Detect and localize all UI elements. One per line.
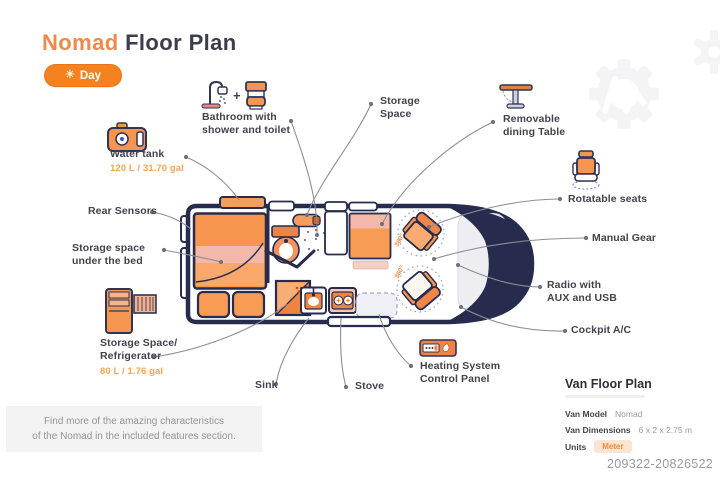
callout-water-tank: Water tank 120 L / 31.70 gal — [110, 148, 190, 176]
sink-unit — [301, 288, 326, 314]
callout-rear-sensors-label: Rear Sensors — [88, 205, 157, 217]
callout-heating: Heating System Control Panel — [420, 360, 508, 387]
callout-storage-under-bed: Storage space under the bed — [72, 242, 154, 269]
toilet-icon — [244, 80, 270, 112]
rotatable-seat-icon — [570, 149, 604, 191]
page-title: Nomad Floor Plan — [42, 30, 237, 56]
callout-cockpit-ac-label: Cockpit A/C — [571, 324, 631, 336]
callout-stove-label: Stove — [355, 380, 384, 392]
callout-storage-under-bed-label: Storage space under the bed — [72, 242, 145, 267]
footer-note: Find more of the amazing characteristics… — [6, 406, 262, 452]
sun-icon: ☀ — [65, 70, 75, 81]
plus-separator: + — [233, 88, 241, 103]
callout-radio-label: Radio with AUX and USB — [547, 279, 617, 304]
day-mode-label: Day — [80, 70, 101, 82]
callout-stove: Stove — [355, 380, 384, 393]
units-badge[interactable]: Meter — [594, 440, 631, 453]
callout-removable-table: Removable dining Table — [503, 113, 575, 140]
info-row-units: Units Meter — [565, 440, 632, 453]
roof-storage-box — [220, 197, 265, 208]
info-row-dimensions: Van Dimensions 6 x 2 x 2.75 m — [565, 425, 692, 435]
callout-bathroom: Bathroom with shower and toilet — [202, 111, 300, 138]
info-key-dimensions: Van Dimensions — [565, 425, 631, 435]
callout-cockpit-ac: Cockpit A/C — [571, 324, 651, 337]
callout-rotatable-seats: Rotatable seats — [568, 193, 668, 206]
heating-system-zone — [356, 293, 397, 318]
refrigerator-icon — [102, 285, 160, 337]
callout-bathroom-label: Bathroom with shower and toilet — [202, 111, 290, 136]
stove-unit — [329, 288, 356, 313]
info-value-model: Nomad — [615, 409, 642, 419]
callout-manual-gear-label: Manual Gear — [592, 232, 656, 244]
callout-heating-label: Heating System Control Panel — [420, 360, 500, 385]
callout-storage-fridge-label: Storage Space/ Refrigerator — [100, 337, 177, 362]
shower-icon — [198, 78, 232, 112]
day-mode-button[interactable]: ☀ Day — [44, 64, 122, 87]
document-id: 209322-20826522 — [607, 457, 713, 471]
footer-note-line1: Find more of the amazing characteristics — [44, 414, 224, 429]
callout-storage-fridge: Storage Space/ Refrigerator 80 L / 1.76 … — [100, 337, 192, 378]
page-title-rest: Floor Plan — [125, 30, 237, 55]
fridge-capacity: 80 L / 1.76 gal — [100, 366, 192, 378]
callout-removable-table-label: Removable dining Table — [503, 113, 565, 138]
dining-table — [350, 214, 391, 270]
info-panel-divider — [565, 395, 645, 398]
callout-storage-space-label: Storage Space — [380, 95, 420, 120]
floor-plan-page: 360° 360° — [0, 0, 720, 480]
callout-manual-gear: Manual Gear — [592, 232, 672, 245]
info-value-dimensions: 6 x 2 x 2.75 m — [639, 425, 692, 435]
watermark-gear-icon — [589, 30, 720, 129]
callout-sink: Sink — [255, 379, 278, 392]
page-title-model: Nomad — [42, 30, 119, 55]
dining-table-icon — [498, 82, 536, 112]
bed — [194, 214, 266, 289]
water-tank-capacity: 120 L / 31.70 gal — [110, 163, 190, 175]
info-key-units: Units — [565, 442, 586, 452]
dinette-bench — [325, 212, 347, 255]
van-floorplan: 360° 360° — [181, 197, 532, 326]
callout-rear-sensors: Rear Sensors — [88, 205, 158, 218]
info-row-model: Van Model Nomad — [565, 409, 642, 419]
info-key-model: Van Model — [565, 409, 607, 419]
info-panel-title: Van Floor Plan — [565, 377, 652, 391]
heating-panel-icon — [419, 338, 459, 360]
callout-sink-label: Sink — [255, 379, 278, 391]
callout-water-tank-label: Water tank — [110, 148, 164, 160]
callout-radio: Radio with AUX and USB — [547, 279, 625, 306]
footer-note-line2: of the Nomad in the included features se… — [32, 429, 235, 444]
callout-rotatable-seats-label: Rotatable seats — [568, 193, 647, 205]
callout-storage-space: Storage Space — [380, 95, 430, 122]
